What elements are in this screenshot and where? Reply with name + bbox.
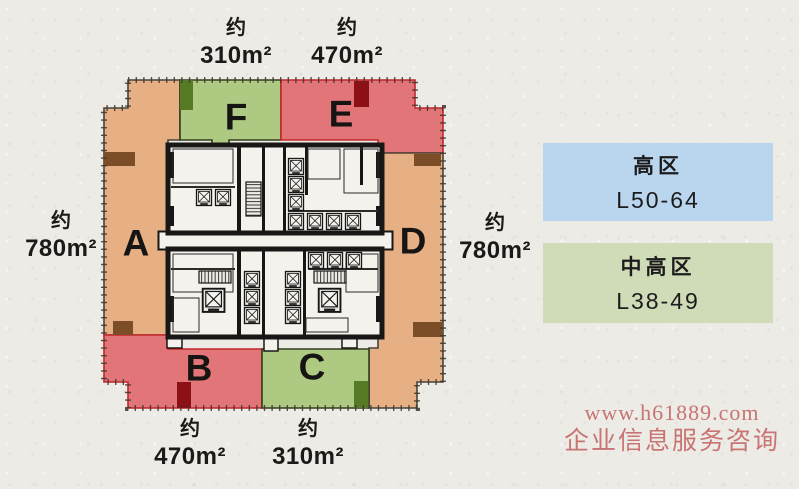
area-value: 470m²	[311, 41, 383, 71]
area-value: 780m²	[459, 236, 531, 266]
area-label-zone-a: 约 780m²	[25, 209, 97, 264]
area-value: 470m²	[154, 442, 226, 472]
zone-a-notch	[113, 321, 133, 335]
zone-c-letter: C	[299, 349, 326, 386]
area-prefix: 约	[154, 417, 226, 442]
legend-floor-range: L38-49	[616, 288, 700, 315]
legend-title: 中高区	[621, 251, 696, 281]
zone-e-notch	[354, 81, 369, 107]
zone-b-letter: B	[186, 350, 213, 387]
zone-d-letter: D	[400, 223, 427, 260]
watermark-url: www.h61889.com	[560, 400, 784, 425]
building-core	[159, 145, 393, 351]
area-prefix: 约	[459, 211, 531, 236]
zone-d-notch	[413, 322, 442, 337]
area-prefix: 约	[200, 16, 272, 41]
zone-a-letter: A	[123, 225, 150, 262]
watermark-caption: 企业信息服务咨询	[560, 428, 784, 457]
legend-floor-range: L50-64	[616, 187, 700, 214]
area-label-zone-b: 约 470m²	[154, 417, 226, 472]
zone-f-letter: F	[225, 99, 248, 136]
watermark: www.h61889.com 企业信息服务咨询	[560, 400, 784, 457]
legend-title: 高区	[633, 150, 683, 180]
area-value: 310m²	[272, 442, 344, 472]
area-prefix: 约	[272, 417, 344, 442]
floorplan-figure: A B C D E F 约 310m² 约 470m² 约 780m² 约 78…	[0, 0, 799, 489]
legend: 高区 L50-64 中高区 L38-49	[543, 143, 773, 323]
area-label-zone-d: 约 780m²	[459, 211, 531, 266]
zone-a-notch	[104, 152, 135, 166]
zone-d-notch	[414, 154, 441, 166]
area-prefix: 约	[25, 209, 97, 234]
zone-c-notch	[354, 381, 368, 408]
area-label-zone-c: 约 310m²	[272, 417, 344, 472]
area-value: 310m²	[200, 41, 272, 71]
area-label-zone-e: 约 470m²	[311, 16, 383, 71]
legend-item-high-zone: 高区 L50-64	[543, 143, 773, 221]
zone-f-notch	[180, 80, 193, 110]
legend-item-mid-high-zone: 中高区 L38-49	[543, 243, 773, 323]
area-prefix: 约	[311, 16, 383, 41]
zone-e-letter: E	[329, 96, 354, 133]
area-label-zone-f: 约 310m²	[200, 16, 272, 71]
area-value: 780m²	[25, 234, 97, 264]
